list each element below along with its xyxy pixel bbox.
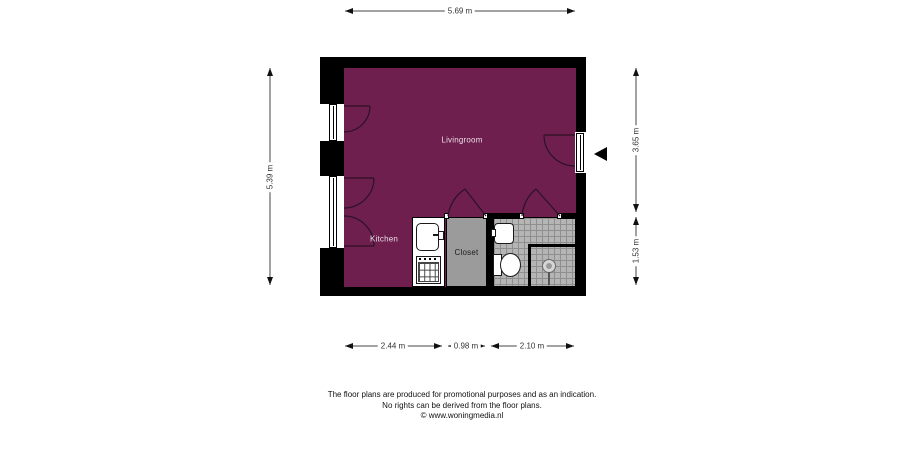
copyright-line: © www.woningmedia.nl (328, 411, 597, 422)
dim-label-bottom-kitchen: 2.44 m (378, 342, 408, 351)
bathroom-faucet-icon (491, 229, 496, 237)
livingroom-label: Livingroom (441, 136, 482, 145)
toilet-bowl (500, 253, 521, 277)
disclaimer-line-2: No rights can be derived from the floor … (328, 401, 597, 412)
window-mullion (333, 178, 334, 246)
dim-label-bottom-bathroom: 2.10 m (517, 342, 547, 351)
footer-disclaimer: The floor plans are produced for promoti… (328, 390, 597, 422)
bathroom-door-post (557, 213, 562, 219)
french-door-frame (329, 176, 337, 248)
bathroom-door-post (519, 213, 524, 219)
shower-partition-wall (528, 244, 531, 287)
closet-door-post (483, 213, 488, 219)
entrance-door-frame (576, 133, 584, 172)
dim-label-top: 5.69 m (445, 7, 475, 16)
shower-drain-pipe (548, 272, 550, 285)
bathroom-top-wall-left (487, 213, 522, 219)
window-mullion (580, 135, 581, 170)
stove-controls (419, 258, 438, 261)
bathroom-sink (494, 223, 514, 244)
dim-label-right-lower: 1.53 m (632, 236, 641, 266)
disclaimer-line-1: The floor plans are produced for promoti… (328, 390, 597, 401)
dim-label-left: 5.39 m (266, 162, 275, 192)
closet-label: Closet (455, 248, 479, 257)
closet-room: Closet (446, 217, 487, 287)
kitchen-label: Kitchen (370, 235, 398, 244)
kitchen-faucet-spout (433, 234, 439, 236)
kitchen-sink (416, 223, 439, 251)
floor-plan-page: Closet (0, 0, 905, 460)
shower-partition-wall (528, 244, 576, 247)
stove-burner-grid (418, 262, 439, 282)
closet-door-post (444, 213, 449, 219)
balcony-door-frame (329, 104, 337, 141)
shower-drain-core (546, 263, 552, 269)
window-mullion (333, 106, 334, 139)
dim-label-bottom-closet: 0.98 m (451, 342, 481, 351)
dim-label-right-upper: 3.65 m (632, 125, 641, 155)
entrance-arrow-icon (594, 147, 607, 161)
